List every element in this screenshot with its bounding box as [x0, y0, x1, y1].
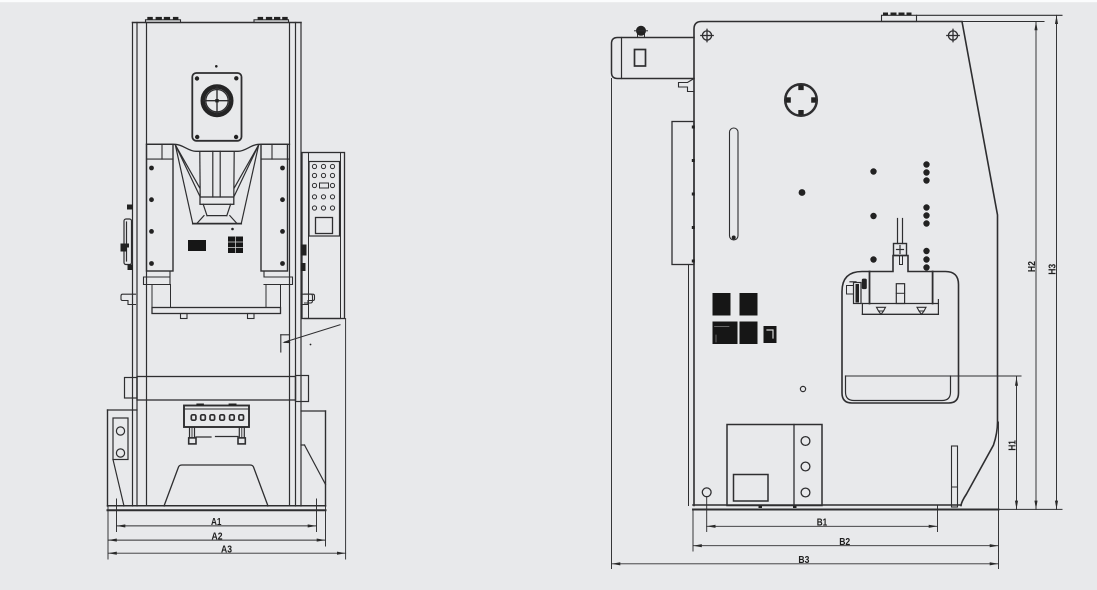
svg-text:B1: B1	[817, 518, 828, 529]
svg-text:A2: A2	[212, 531, 223, 542]
svg-text:H3: H3	[1048, 263, 1059, 274]
svg-text:H1: H1	[1008, 440, 1019, 451]
svg-text:B3: B3	[798, 555, 809, 566]
svg-text:A1: A1	[211, 517, 222, 528]
svg-text:B2: B2	[839, 537, 850, 548]
svg-text:A3: A3	[221, 545, 232, 556]
svg-text:H2: H2	[1027, 261, 1038, 272]
